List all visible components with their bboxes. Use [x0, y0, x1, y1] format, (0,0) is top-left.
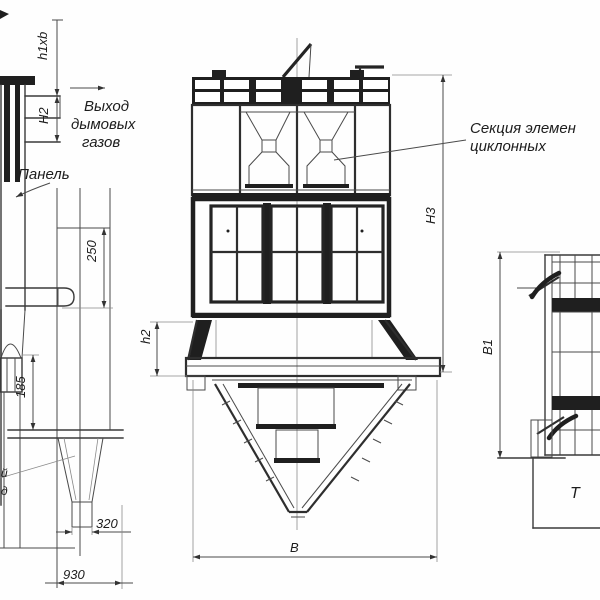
- dim-185: 185: [13, 355, 39, 430]
- dim-outlet-opening: h1xb: [35, 20, 63, 96]
- dim-320: 320: [56, 516, 131, 535]
- cyclone-section-label: Секция элемен циклонных: [470, 120, 576, 155]
- dim-h2-text: h2: [138, 329, 153, 344]
- sling-hook-mark-bottom: [537, 416, 576, 438]
- dim-250: 250: [62, 228, 113, 308]
- cyclone-assembly-drawing: h1xb Н2 Выход дымовых газов Панель 250: [0, 0, 600, 600]
- svg-text:Выход: Выход: [84, 98, 129, 115]
- corner-mark: [0, 10, 9, 19]
- support-skirt: [188, 320, 418, 360]
- base-frame: [498, 458, 600, 528]
- dim-h3-text: Н3: [423, 207, 438, 224]
- support-foot: [187, 376, 205, 390]
- dim-185-text: 185: [13, 376, 28, 398]
- dust-hopper: [212, 380, 412, 517]
- discharge-funnel: [8, 430, 123, 527]
- dim-h2-outlet-text: Н2: [36, 107, 51, 124]
- side-pipe: [6, 288, 74, 306]
- hopper-step-1: [258, 388, 334, 428]
- hinge-lug: [350, 70, 364, 77]
- cyclone-element-right: [303, 112, 349, 188]
- dim-930: 930: [45, 505, 133, 589]
- panel-leader-line: [16, 183, 50, 197]
- dim-outlet-height: Н2: [36, 96, 57, 142]
- gas-outlet-label: Выход дымовых газов: [71, 98, 136, 151]
- svg-text:газов: газов: [82, 134, 120, 151]
- panel-window-grid: [192, 199, 390, 318]
- svg-text:Секция элемен: Секция элемен: [470, 120, 576, 137]
- sling-hook-mark-top: [517, 273, 559, 297]
- dim-930-text: 930: [63, 567, 85, 582]
- dim-320-text: 320: [96, 516, 118, 531]
- dim-transition-height: h2: [138, 322, 193, 376]
- dim-b-text: В: [290, 540, 299, 555]
- top-hatch-row: [192, 77, 390, 105]
- svg-text:дымовых: дымовых: [71, 116, 136, 133]
- dim-h1xb-text: h1xb: [35, 32, 50, 60]
- front-view: Секция элемен циклонных: [138, 38, 576, 562]
- edge-fragment-1: й: [1, 466, 8, 480]
- hinge-lug: [212, 70, 226, 77]
- dim-b1-text: В1: [480, 339, 495, 355]
- svg-text:циклонных: циклонных: [470, 138, 546, 155]
- drawing-sheet: h1xb Н2 Выход дымовых газов Панель 250: [0, 0, 600, 600]
- right-side-view: В1: [480, 252, 600, 528]
- dim-250-text: 250: [84, 240, 99, 263]
- cyclone-element-left: [245, 112, 293, 188]
- edge-fragment-right: Т: [570, 485, 581, 502]
- left-cyclone-lower-body: [0, 310, 25, 548]
- cyclone-section-leader: [334, 140, 466, 160]
- panel-label: Панель: [18, 166, 70, 183]
- cyclone-elements-section: [192, 105, 390, 197]
- left-side-view: h1xb Н2 Выход дымовых газов Панель 250: [0, 10, 136, 589]
- edge-fragment-2: д: [1, 484, 8, 498]
- dim-total-height: Н3: [392, 75, 452, 372]
- edge-leader-line: [0, 456, 75, 478]
